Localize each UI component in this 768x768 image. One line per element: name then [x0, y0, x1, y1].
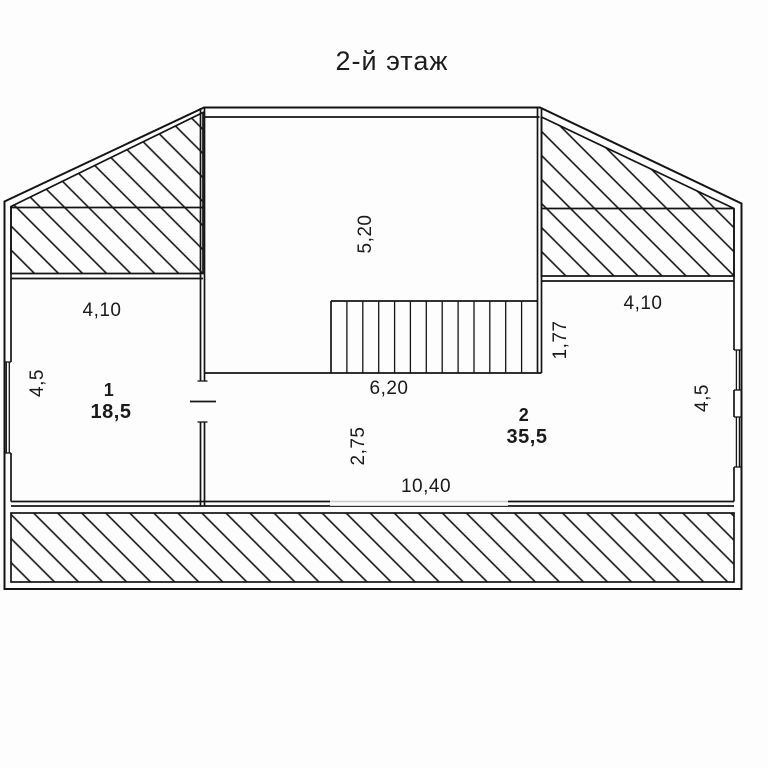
dim-stairwell-depth: 5,20 [355, 215, 376, 254]
room-1-area: 18,5 [91, 401, 132, 423]
dim-total-width: 10,40 [401, 476, 451, 497]
room-2-area: 35,5 [507, 426, 548, 448]
stairs [205, 301, 542, 373]
roof-hatch-right [542, 117, 735, 281]
floor-plan-drawing: 2-й этаж [0, 0, 768, 768]
dim-left-width: 4,10 [83, 300, 122, 321]
room-2-number: 2 [519, 405, 530, 425]
dim-stairs-run: 6,20 [370, 378, 409, 399]
dim-right-height: 4,5 [692, 384, 713, 412]
bottom-wall-hatch [11, 502, 734, 583]
window-right-lower [734, 417, 742, 467]
watermark [330, 496, 508, 506]
stairwell-right-wall [538, 108, 542, 373]
floor-title: 2-й этаж [336, 46, 449, 76]
roof-hatch-left [11, 113, 203, 279]
dim-hall-depth: 2,75 [348, 427, 369, 466]
dim-left-height: 4,5 [27, 369, 48, 397]
stair-treads [347, 301, 522, 373]
floor-plan-page: 2-й этаж [0, 0, 768, 768]
dim-right-width: 4,10 [624, 293, 663, 314]
room-1-number: 1 [104, 380, 115, 400]
window-right-upper [734, 350, 742, 390]
dim-stairs-width: 1,77 [550, 321, 571, 360]
